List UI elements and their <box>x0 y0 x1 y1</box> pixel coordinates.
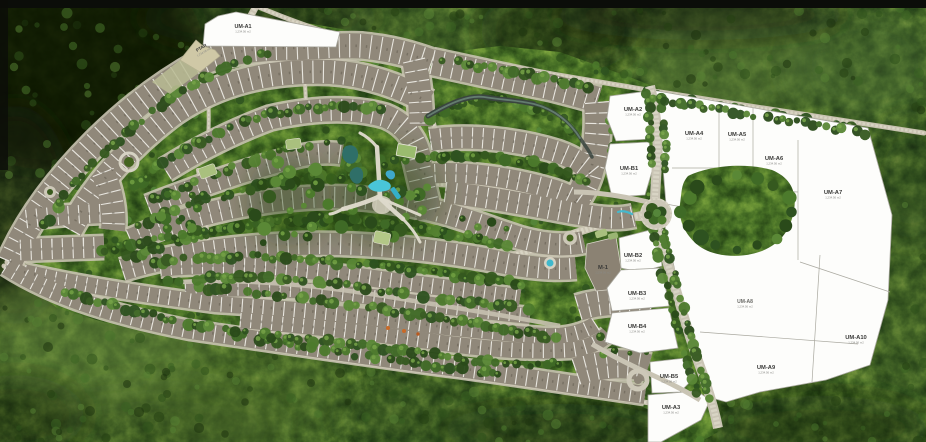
svg-text:1,234.56 m2: 1,234.56 m2 <box>629 330 645 334</box>
svg-text:1,234.56 m2: 1,234.56 m2 <box>661 380 677 384</box>
svg-text:1,234.56 m2: 1,234.56 m2 <box>629 297 645 301</box>
svg-text:1,234.56 m2: 1,234.56 m2 <box>825 196 841 200</box>
svg-text:1,234.56 m2: 1,234.56 m2 <box>621 172 637 176</box>
svg-text:1,234.56 m2: 1,234.56 m2 <box>663 411 679 415</box>
svg-text:1,234.56 m2: 1,234.56 m2 <box>729 138 745 142</box>
svg-text:1,234.56 m2: 1,234.56 m2 <box>595 271 611 275</box>
svg-text:1,234.56 m2: 1,234.56 m2 <box>737 305 753 309</box>
svg-text:1,234.56 m2: 1,234.56 m2 <box>758 371 774 375</box>
svg-text:1,234.56 m2: 1,234.56 m2 <box>235 30 251 34</box>
svg-text:1,234.56 m2: 1,234.56 m2 <box>625 259 641 263</box>
svg-text:1,234.56 m2: 1,234.56 m2 <box>686 137 702 141</box>
svg-text:1,234.56 m2: 1,234.56 m2 <box>766 162 782 166</box>
svg-text:1,234.56 m2: 1,234.56 m2 <box>625 113 641 117</box>
svg-text:1,234.56 m2: 1,234.56 m2 <box>848 341 864 345</box>
